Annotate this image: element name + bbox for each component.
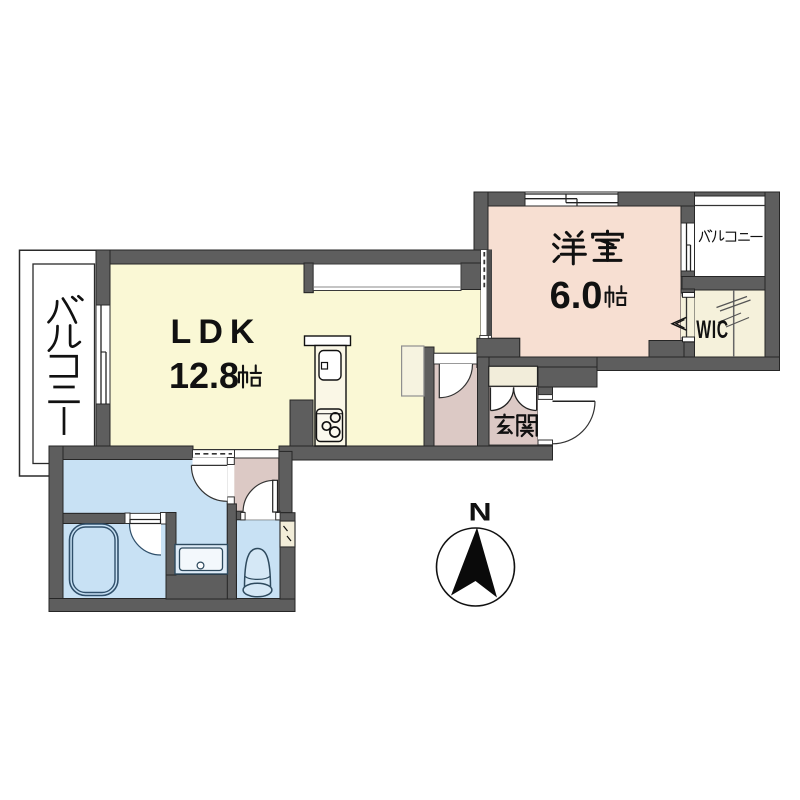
svg-text:12.8: 12.8 <box>169 355 239 396</box>
svg-text:WIC: WIC <box>696 316 728 344</box>
svg-text:LDK: LDK <box>171 313 262 351</box>
svg-text:N: N <box>468 499 491 527</box>
svg-text:6.0: 6.0 <box>550 275 603 317</box>
